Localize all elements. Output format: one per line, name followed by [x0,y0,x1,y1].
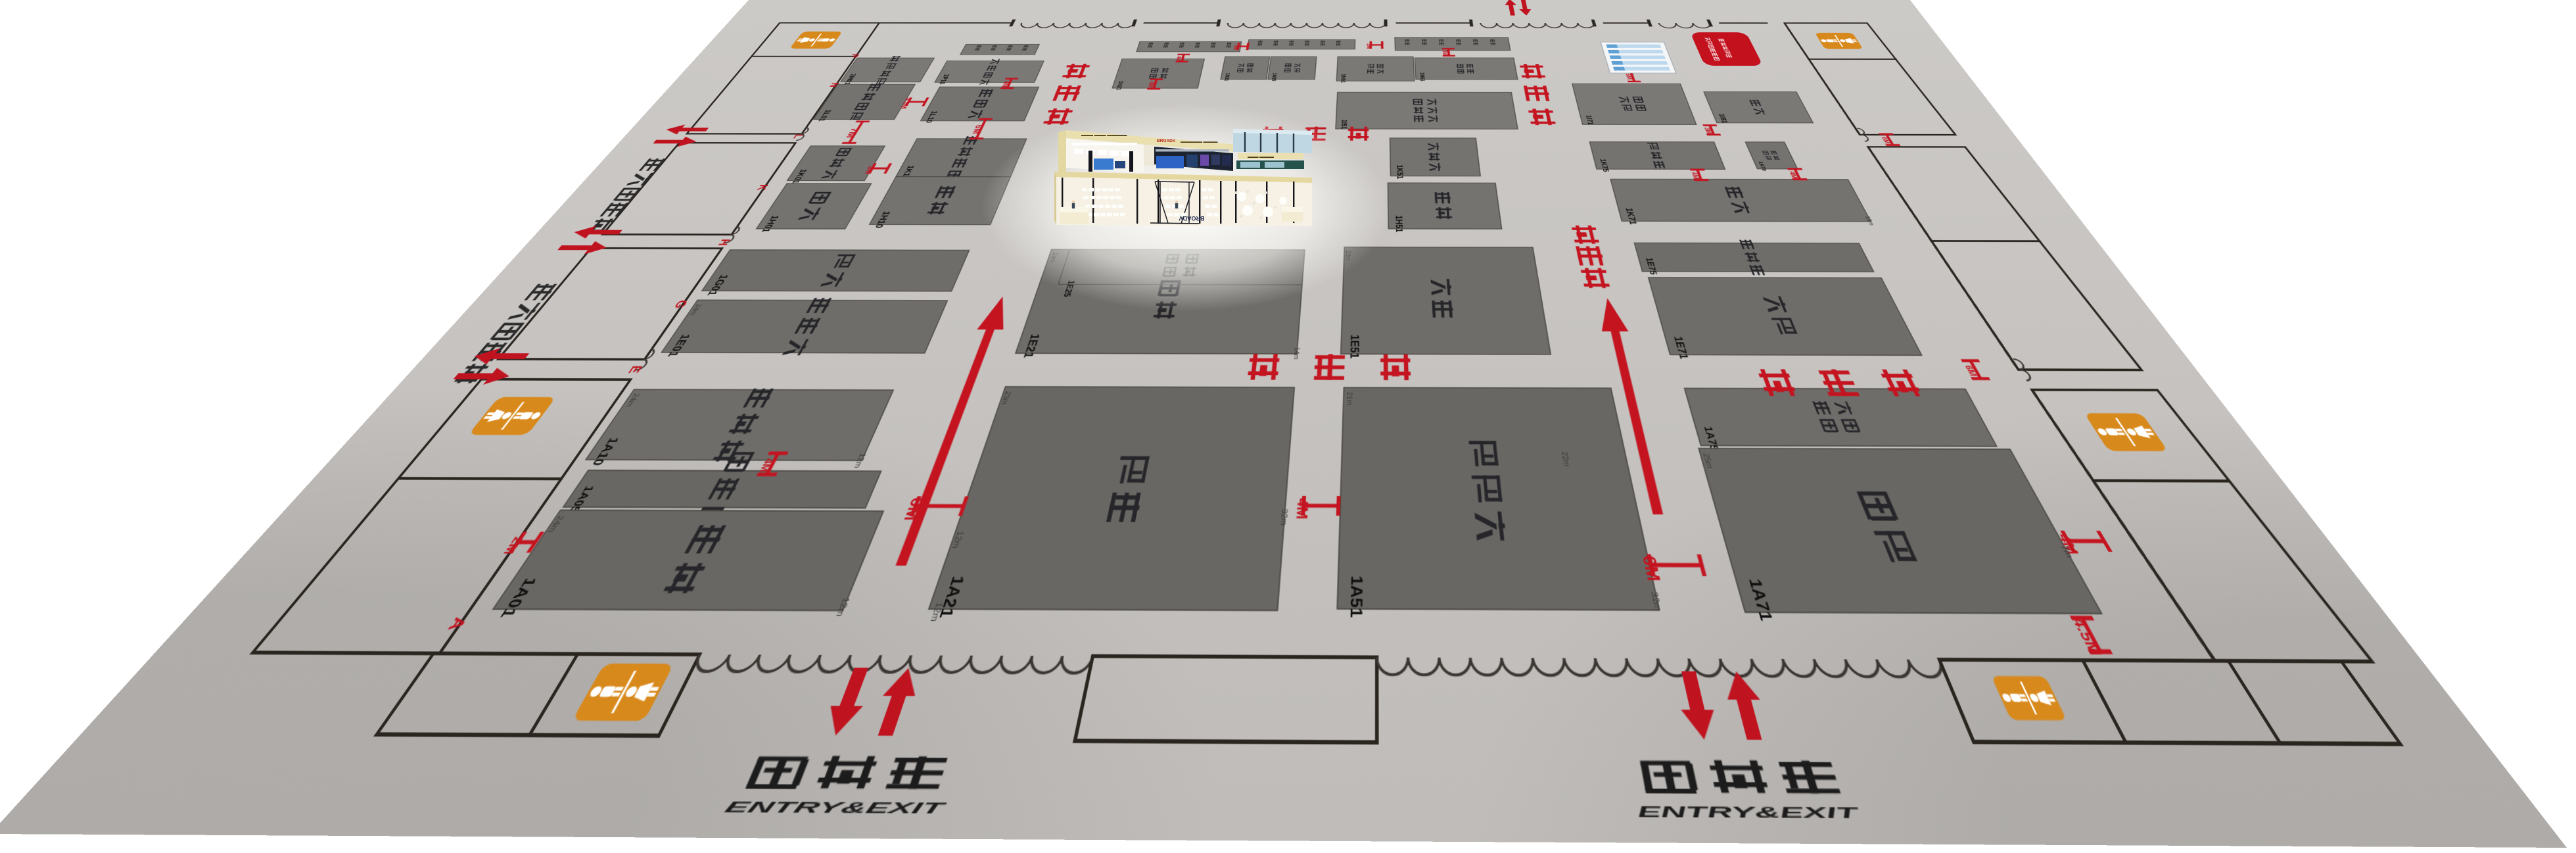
svg-text:BROADV: BROADV [1179,215,1204,222]
svg-text:3M: 3M [1441,50,1448,55]
svg-text:3M: 3M [1232,45,1240,50]
svg-text:1N51: 1N51 [1340,74,1346,83]
svg-text:32m: 32m [1278,509,1290,525]
svg-text:1E51: 1E51 [1347,335,1362,359]
svg-text:14m: 14m [1292,347,1302,360]
svg-text:1N35: 1N35 [1271,73,1278,82]
svg-text:21m: 21m [1345,392,1354,405]
svg-text:▬▬▬▬▬▬ ▬▬▬▬: ▬▬▬▬▬▬ ▬▬▬▬ [1181,140,1218,144]
svg-text:3M: 3M [1365,43,1372,49]
svg-text:4M: 4M [1292,498,1311,519]
svg-text:▬▬▬ ▬▬▬ ▬▬▬▬▬: ▬▬▬ ▬▬▬ ▬▬▬▬▬ [1081,134,1127,137]
svg-text:▬▬▬ ▬▬▬▬: ▬▬▬ ▬▬▬▬ [1248,155,1275,159]
svg-text:ENTRY&EXIT: ENTRY&EXIT [722,800,949,818]
svg-text:BROADV: BROADV [1157,139,1176,143]
svg-text:1A51: 1A51 [1346,575,1365,618]
svg-text:ENTRY&EXIT: ENTRY&EXIT [1636,804,1865,823]
svg-text:1N61: 1N61 [1419,72,1426,82]
